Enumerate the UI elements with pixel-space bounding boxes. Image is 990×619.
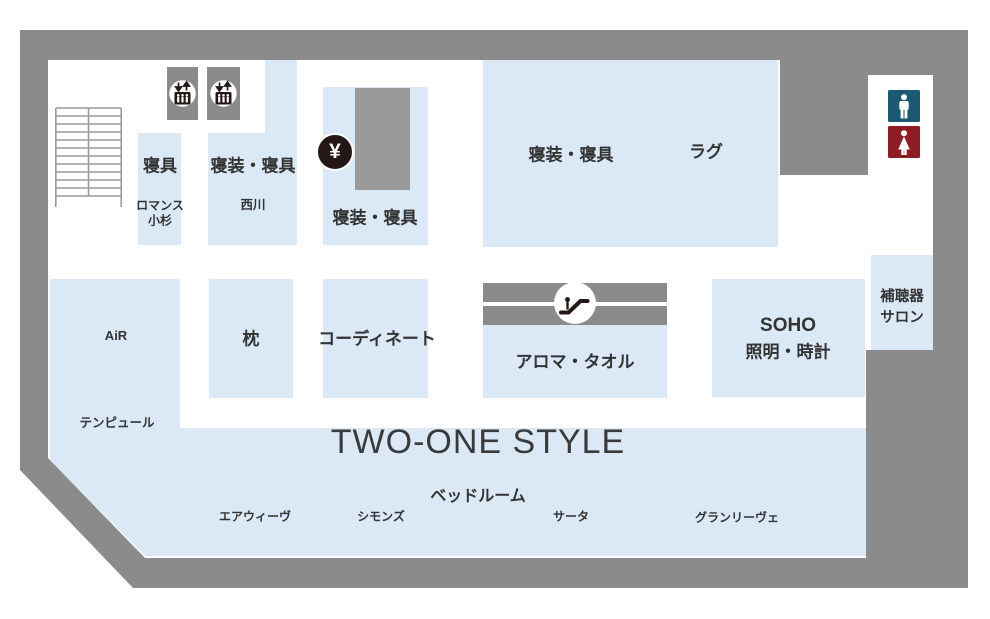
area-label-bedding-small: 寝具 — [143, 155, 177, 176]
area-label-rug: ラグ — [689, 141, 723, 162]
area-label-lighting-clocks: 照明・時計 — [746, 341, 831, 362]
brand-label-simmons: シモンズ — [357, 510, 405, 525]
tenant-label-kosugi: 小杉 — [148, 214, 172, 229]
area-title-two-one-style: TWO-ONE STYLE — [331, 421, 625, 464]
area-label-bedding-nishikawa: 寝装・寝具 — [211, 155, 296, 176]
area-label-soho: SOHO — [760, 314, 816, 338]
elevator-icon — [207, 67, 240, 120]
brand-label-airweave: エアウィーヴ — [219, 510, 291, 525]
elevator-icon — [167, 67, 198, 120]
area-label-air: AiR — [105, 328, 127, 344]
area-label-coordinate: コーディネート — [318, 328, 436, 349]
area-bedding-rug — [483, 60, 778, 247]
area-label-bedroom: ベッドルーム — [430, 487, 526, 507]
mens-restroom-icon — [888, 90, 920, 122]
area-label-aroma-towel: アロマ・タオル — [516, 351, 635, 372]
cash-register-icon: ¥ — [316, 133, 354, 171]
area-soho — [712, 279, 865, 397]
womens-restroom-icon — [888, 126, 920, 158]
area-label-hearing-aid: 補聴器 — [880, 288, 924, 306]
structural-pillar — [355, 88, 410, 190]
area-label-salon: サロン — [880, 309, 924, 327]
area-label-bedding-center: 寝装・寝具 — [333, 207, 418, 228]
tenant-label-nishikawa: 西川 — [240, 198, 265, 214]
brand-label-serta: サータ — [553, 510, 589, 525]
brand-label-grandlit: グランリーヴェ — [695, 511, 779, 526]
floor-map: ¥ 寝具 ロマンス 小杉 寝装・寝具 西川 寝装・寝具 寝装・寝具 ラグ AiR… — [0, 0, 990, 619]
area-label-bedding-rug: 寝装・寝具 — [529, 144, 614, 165]
tenant-label-tempur: テンピュール — [79, 416, 154, 432]
tenant-label-romance: ロマンス — [136, 199, 184, 214]
yen-symbol: ¥ — [329, 140, 341, 163]
area-label-pillow: 枕 — [243, 328, 260, 349]
